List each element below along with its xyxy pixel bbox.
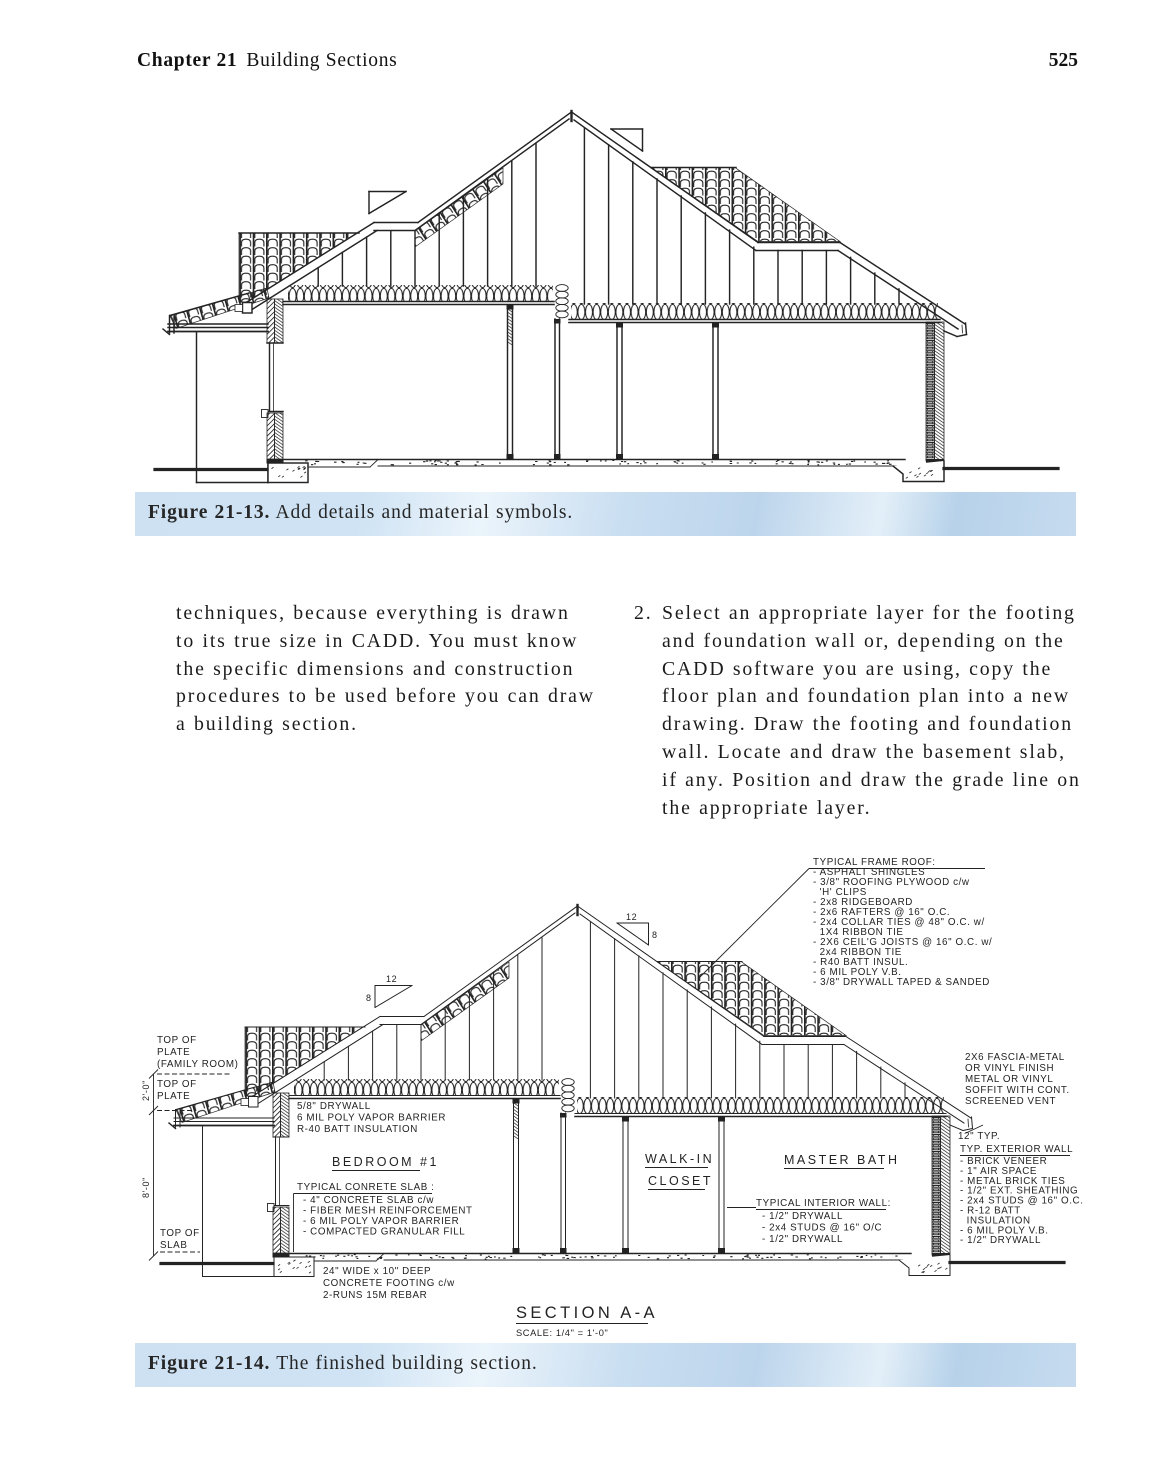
svg-text:2X6 FASCIA-METAL: 2X6 FASCIA-METAL: [965, 1052, 1065, 1063]
svg-text:12: 12: [626, 912, 637, 922]
svg-text:- 1/2" DRYWALL: - 1/2" DRYWALL: [762, 1234, 843, 1245]
svg-text:SECTION A-A: SECTION A-A: [516, 1304, 658, 1322]
svg-text:BEDROOM #1: BEDROOM #1: [332, 1155, 439, 1169]
svg-text:TOP OF: TOP OF: [160, 1228, 200, 1239]
svg-text:TYPICAL INTERIOR WALL:: TYPICAL INTERIOR WALL:: [756, 1198, 891, 1209]
svg-text:TOP OF: TOP OF: [157, 1079, 197, 1090]
svg-text:WALK-IN: WALK-IN: [645, 1152, 714, 1166]
svg-text:24" WIDE x 10" DEEP: 24" WIDE x 10" DEEP: [323, 1266, 431, 1277]
svg-text:SCREENED VENT: SCREENED VENT: [965, 1096, 1056, 1107]
svg-text:8: 8: [366, 993, 372, 1003]
svg-text:- 3/8" DRYWALL TAPED & SANDED: - 3/8" DRYWALL TAPED & SANDED: [813, 977, 990, 988]
svg-text:CONCRETE FOOTING c/w: CONCRETE FOOTING c/w: [323, 1278, 455, 1289]
svg-text:PLATE: PLATE: [157, 1047, 190, 1058]
svg-text:OR VINYL FINISH: OR VINYL FINISH: [965, 1063, 1054, 1074]
svg-text:2-RUNS 15M REBAR: 2-RUNS 15M REBAR: [323, 1290, 427, 1301]
svg-text:PLATE: PLATE: [157, 1091, 190, 1102]
svg-text:2'-0": 2'-0": [141, 1080, 151, 1101]
svg-text:6 MIL POLY VAPOR BARRIER: 6 MIL POLY VAPOR BARRIER: [297, 1113, 446, 1124]
svg-text:- FIBER MESH REINFORCEMENT: - FIBER MESH REINFORCEMENT: [303, 1206, 473, 1217]
svg-text:TYPICAL CONRETE SLAB :: TYPICAL CONRETE SLAB :: [297, 1182, 435, 1193]
svg-text:(FAMILY ROOM): (FAMILY ROOM): [157, 1059, 238, 1070]
svg-text:8'-0": 8'-0": [141, 1177, 151, 1198]
svg-text:R-40 BATT INSULATION: R-40 BATT INSULATION: [297, 1124, 418, 1135]
svg-text:CLOSET: CLOSET: [648, 1174, 713, 1188]
svg-text:- 1/2" DRYWALL: - 1/2" DRYWALL: [960, 1235, 1041, 1246]
svg-text:- 4" CONCRETE SLAB c/w: - 4" CONCRETE SLAB c/w: [303, 1195, 434, 1206]
svg-text:TOP OF: TOP OF: [157, 1035, 197, 1046]
svg-text:- COMPACTED GRANULAR FILL: - COMPACTED GRANULAR FILL: [303, 1227, 465, 1238]
svg-text:- 1/2" DRYWALL: - 1/2" DRYWALL: [762, 1211, 843, 1222]
svg-text:METAL OR VINYL: METAL OR VINYL: [965, 1074, 1053, 1085]
svg-text:8: 8: [652, 930, 658, 940]
svg-text:5/8" DRYWALL: 5/8" DRYWALL: [297, 1101, 371, 1112]
svg-text:TYP. EXTERIOR WALL: TYP. EXTERIOR WALL: [960, 1144, 1073, 1155]
svg-text:SOFFIT WITH CONT.: SOFFIT WITH CONT.: [965, 1085, 1070, 1096]
svg-text:- 2x4 STUDS @ 16" O/C: - 2x4 STUDS @ 16" O/C: [762, 1223, 882, 1234]
svg-text:MASTER BATH: MASTER BATH: [784, 1153, 899, 1167]
svg-text:- 6 MIL POLY VAPOR BARRIER: - 6 MIL POLY VAPOR BARRIER: [303, 1216, 459, 1227]
svg-text:SCALE: 1/4" = 1'-0": SCALE: 1/4" = 1'-0": [516, 1328, 608, 1338]
svg-text:12: 12: [386, 974, 397, 984]
svg-text:SLAB: SLAB: [160, 1240, 187, 1251]
svg-text:12" TYP.: 12" TYP.: [958, 1131, 1000, 1142]
